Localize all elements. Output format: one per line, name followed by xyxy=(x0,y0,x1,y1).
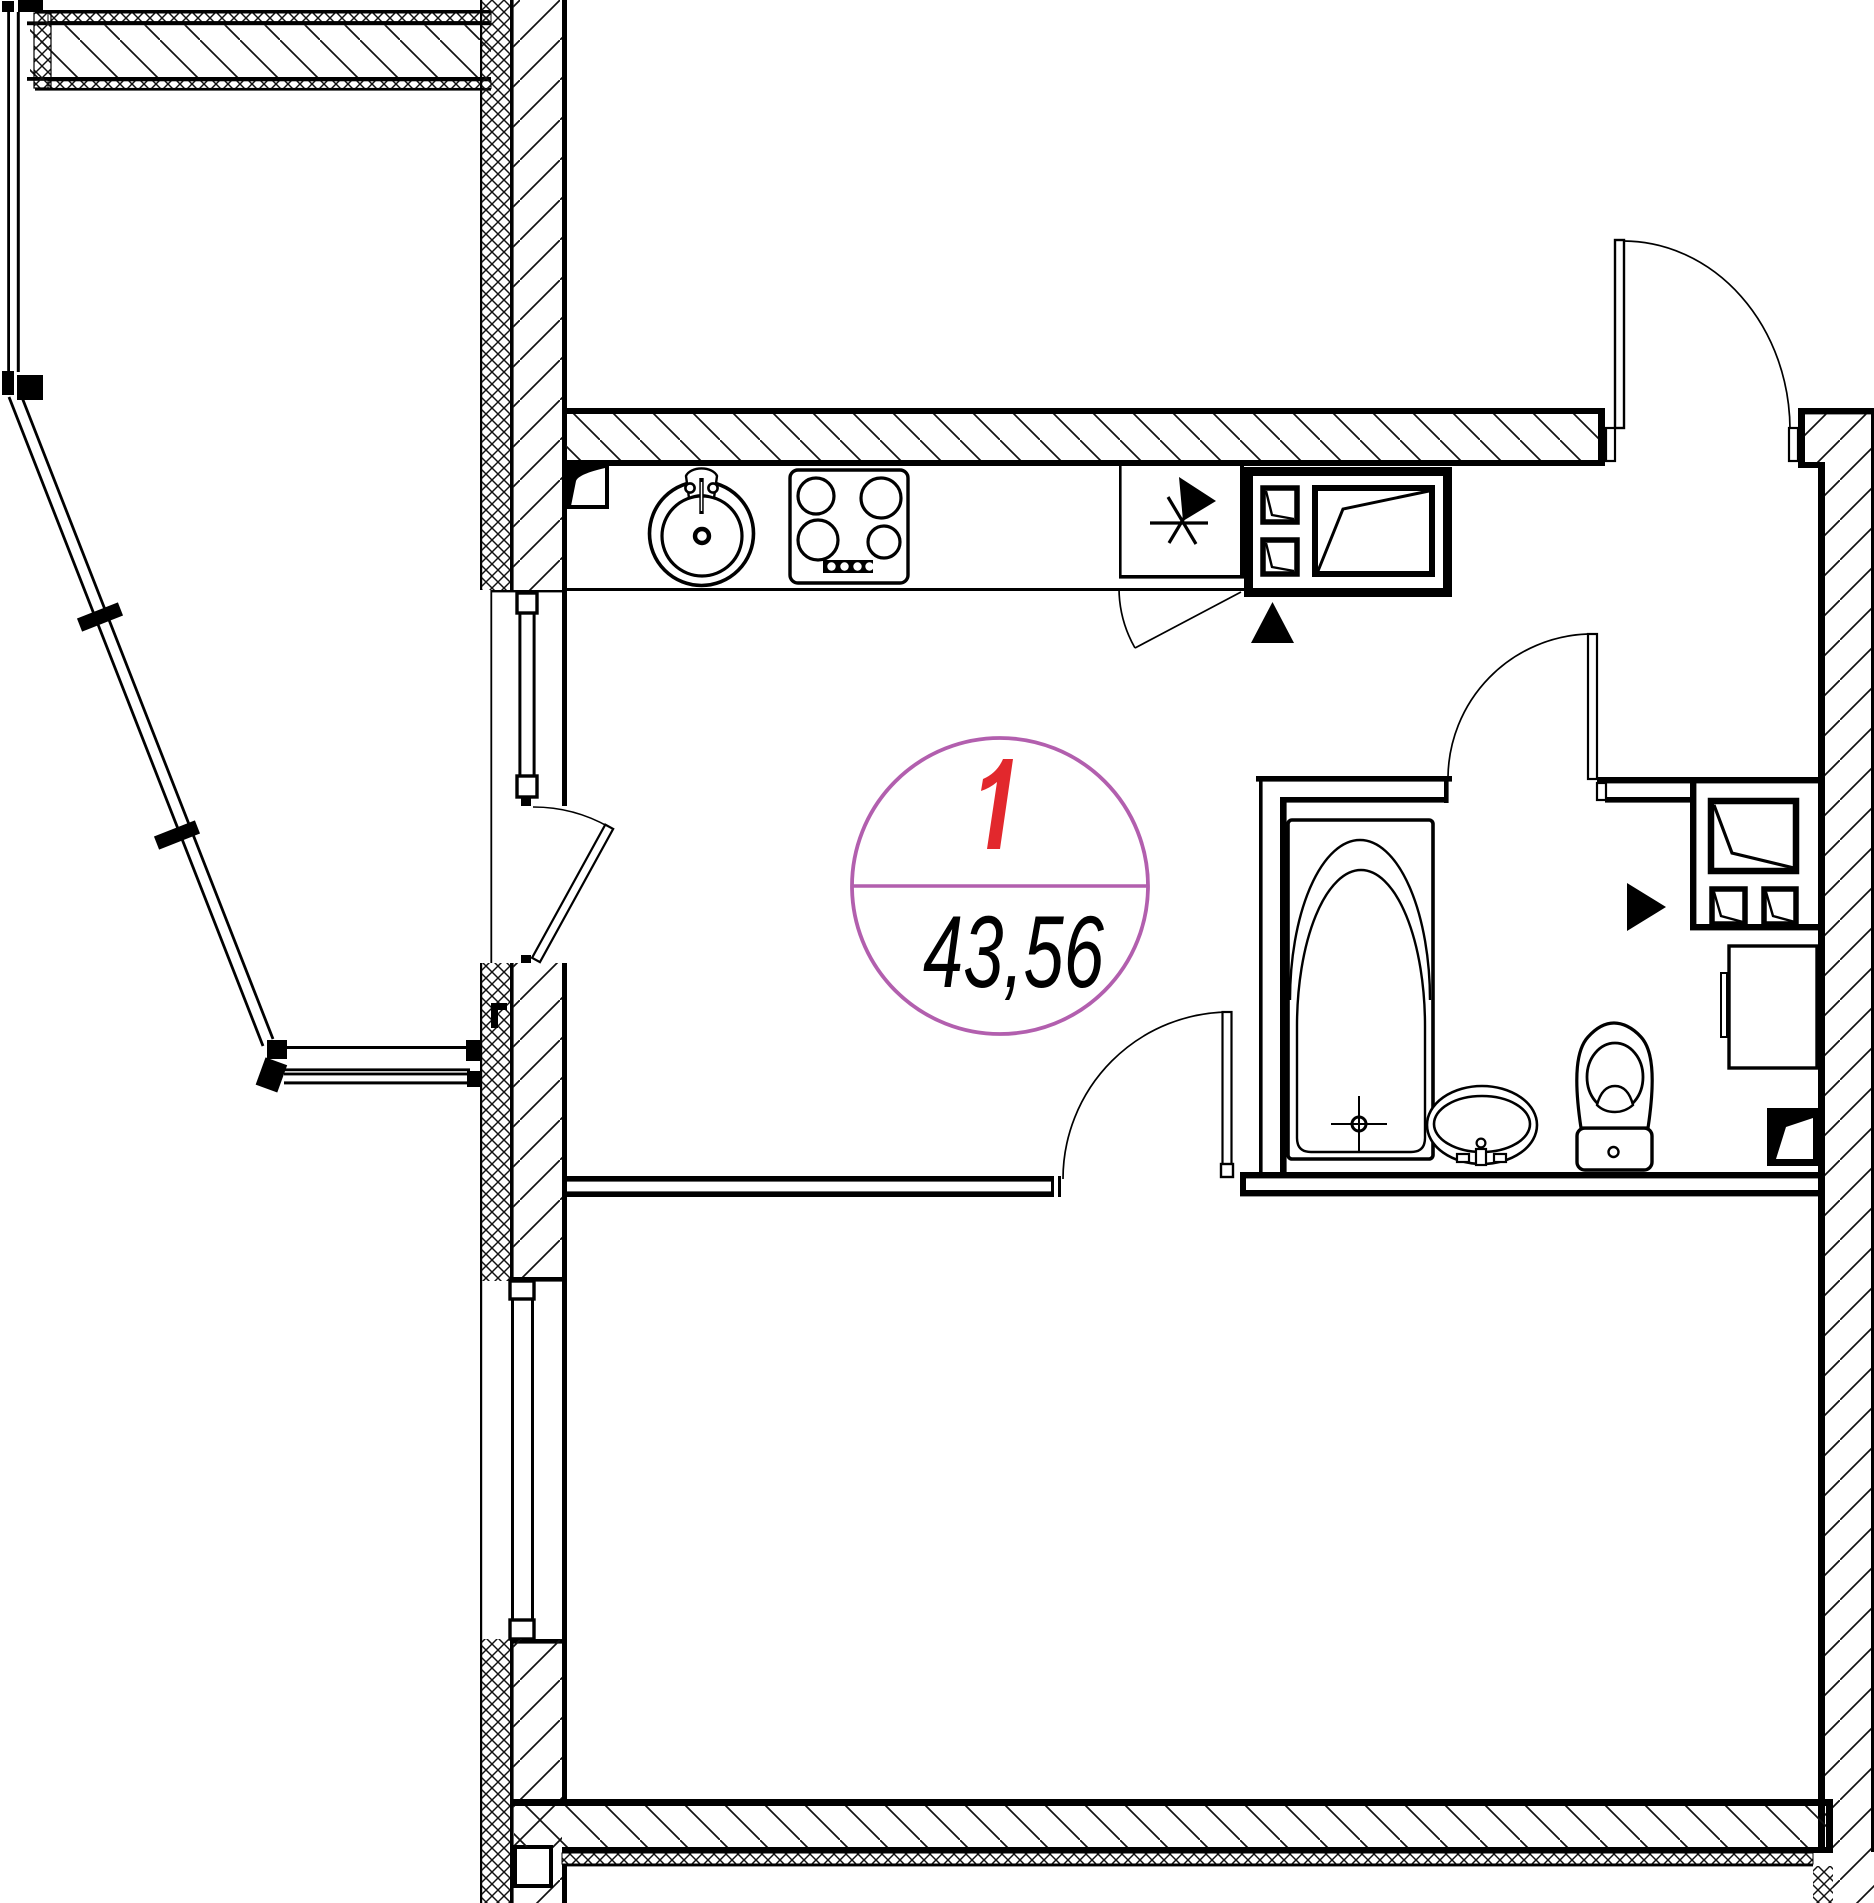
svg-text:43,56: 43,56 xyxy=(923,895,1104,1009)
